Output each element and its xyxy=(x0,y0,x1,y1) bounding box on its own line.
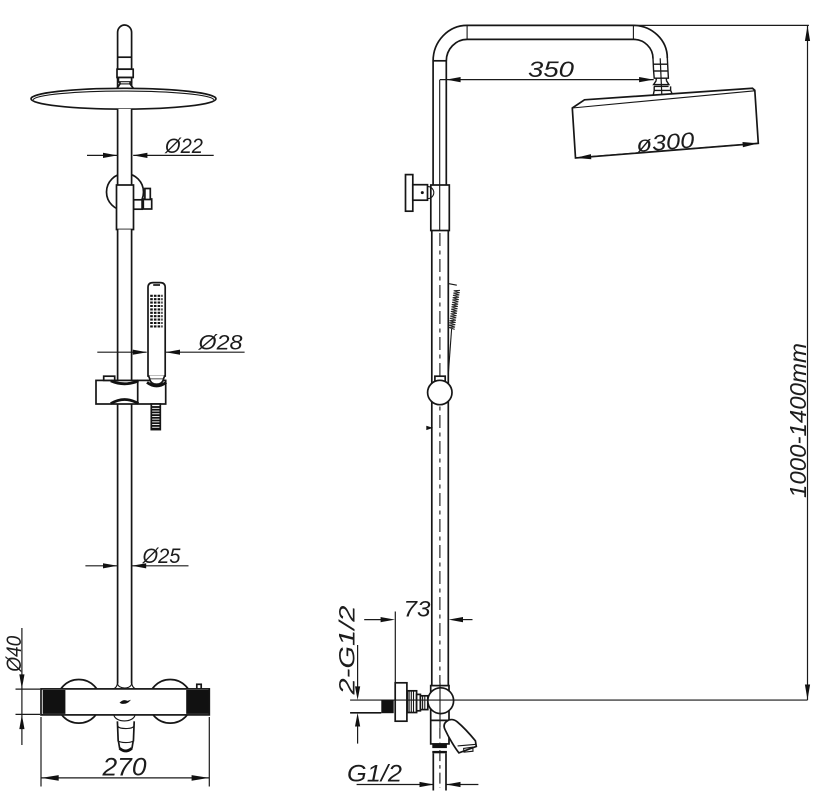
svg-text:1000-1400mm: 1000-1400mm xyxy=(785,343,811,498)
svg-text:Ø22: Ø22 xyxy=(164,135,203,158)
svg-text:350: 350 xyxy=(528,57,575,82)
svg-text:Ø40: Ø40 xyxy=(3,636,26,673)
svg-text:ø300: ø300 xyxy=(635,127,696,157)
svg-text:Ø28: Ø28 xyxy=(197,331,242,355)
svg-text:73: 73 xyxy=(404,597,432,622)
svg-text:2-G1/2: 2-G1/2 xyxy=(335,606,360,696)
svg-text:Ø25: Ø25 xyxy=(142,545,181,568)
svg-text:270: 270 xyxy=(101,754,146,782)
svg-text:G1/2: G1/2 xyxy=(347,761,402,788)
